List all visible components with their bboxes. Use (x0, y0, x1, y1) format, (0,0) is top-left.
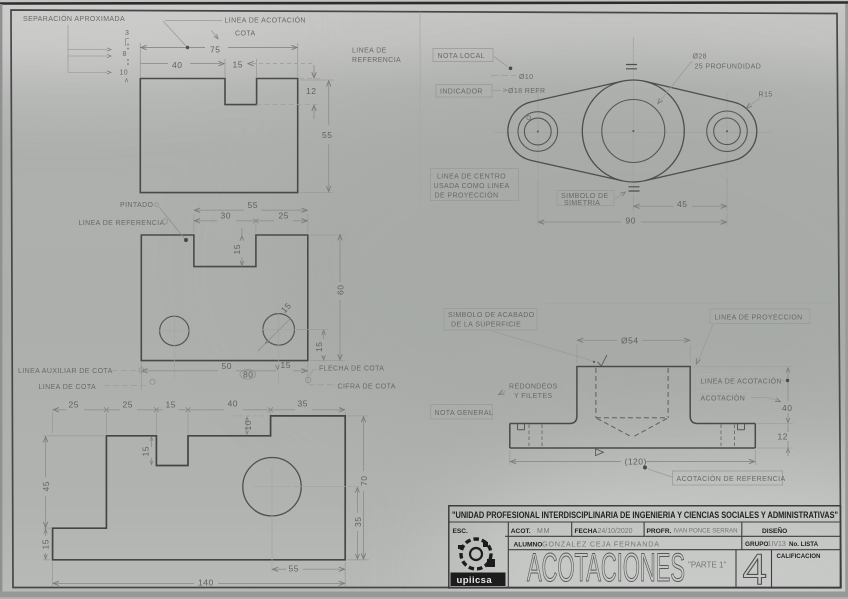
svg-text:35: 35 (353, 517, 363, 527)
svg-text:PROFR.: PROFR. (647, 528, 672, 535)
svg-text:LINEA DE ACOTACIÓN: LINEA DE ACOTACIÓN (701, 377, 782, 386)
svg-text:12: 12 (778, 432, 788, 442)
svg-text:140: 140 (198, 578, 214, 588)
svg-text:ACOTACIÓN: ACOTACIÓN (701, 394, 746, 403)
svg-text:CIFRA DE COTA: CIFRA DE COTA (338, 384, 396, 391)
svg-text:25 PROFUNDIDAD: 25 PROFUNDIDAD (695, 64, 762, 71)
svg-text:90: 90 (626, 216, 636, 226)
svg-text:LINEA DE COTA: LINEA DE COTA (39, 384, 97, 391)
svg-text:ESC.: ESC. (453, 528, 469, 535)
svg-text:3: 3 (125, 30, 129, 37)
svg-text:CALIFICACION: CALIFICACION (777, 554, 821, 560)
svg-text:NOTA GENERAL: NOTA GENERAL (435, 410, 494, 417)
svg-text:COTA: COTA (235, 31, 256, 38)
svg-text:15: 15 (232, 244, 242, 254)
svg-text:40: 40 (228, 398, 238, 408)
svg-text:LINEA DE: LINEA DE (352, 48, 387, 55)
svg-text:15: 15 (281, 360, 291, 370)
svg-text:45: 45 (677, 199, 687, 209)
svg-text:Ø10: Ø10 (519, 74, 533, 81)
svg-text:Ø18 REFR: Ø18 REFR (508, 88, 545, 95)
svg-text:55: 55 (322, 130, 332, 140)
svg-text:FECHA: FECHA (575, 528, 598, 535)
svg-text:40: 40 (172, 60, 182, 70)
svg-text:15: 15 (41, 539, 51, 549)
svg-text:No. LISTA: No. LISTA (789, 541, 819, 548)
svg-text:USADA COMO LINEA: USADA COMO LINEA (434, 183, 510, 190)
svg-text:"PARTE 1": "PARTE 1" (688, 561, 726, 570)
svg-text:ACOTACIONES: ACOTACIONES (527, 546, 685, 590)
svg-text:SIMBOLO DE ACABADO: SIMBOLO DE ACABADO (448, 312, 535, 319)
svg-text:FLECHA DE COTA: FLECHA DE COTA (319, 366, 384, 373)
svg-text:55: 55 (289, 564, 299, 574)
svg-text:25: 25 (279, 210, 289, 220)
svg-text:15: 15 (166, 399, 176, 409)
svg-text:DISEÑO: DISEÑO (762, 526, 787, 535)
svg-text:Ø28: Ø28 (693, 54, 707, 61)
svg-text:Ø54: Ø54 (621, 336, 639, 346)
svg-text:DE PROYECCIÓN: DE PROYECCIÓN (435, 191, 499, 200)
svg-text:1IV13: 1IV13 (768, 541, 786, 548)
svg-text:12: 12 (306, 86, 316, 96)
svg-text:55: 55 (248, 200, 258, 210)
svg-text:LINEA DE PROYECCION: LINEA DE PROYECCION (715, 315, 803, 322)
svg-text:R15: R15 (759, 92, 773, 99)
svg-text:INDICADOR: INDICADOR (440, 89, 483, 96)
svg-text:"UNIDAD PROFESIONAL INTERDISCI: "UNIDAD PROFESIONAL INTERDISCIPLINARIA D… (452, 509, 838, 520)
svg-text:10: 10 (243, 420, 253, 430)
svg-text:REFERENCIA: REFERENCIA (352, 57, 401, 64)
svg-text:4: 4 (743, 546, 767, 595)
svg-text:IVAN PONCE SERRAN: IVAN PONCE SERRAN (674, 529, 738, 535)
svg-text:(120): (120) (625, 457, 647, 467)
svg-text:LINEA DE ACOTACIÓN: LINEA DE ACOTACIÓN (225, 16, 306, 25)
svg-text:60: 60 (336, 285, 346, 295)
svg-text:30: 30 (221, 210, 231, 220)
svg-text:10: 10 (120, 70, 129, 77)
svg-text:8: 8 (123, 51, 127, 58)
svg-text:50: 50 (222, 361, 232, 371)
svg-text:15: 15 (314, 342, 324, 352)
svg-text:15: 15 (141, 446, 151, 456)
svg-text:DE LA SUPERFICIE: DE LA SUPERFICIE (451, 322, 521, 329)
svg-text:SIMETRIA: SIMETRIA (564, 200, 600, 207)
svg-text:LINEA AUXILIAR DE COTA: LINEA AUXILIAR DE COTA (18, 368, 113, 375)
svg-text:Y FILETES: Y FILETES (514, 393, 552, 400)
svg-text:upiicsa: upiicsa (457, 575, 493, 586)
svg-text:15: 15 (233, 60, 243, 70)
svg-text:75: 75 (210, 45, 220, 55)
svg-text:REDONDEOS: REDONDEOS (509, 384, 558, 391)
svg-text:70: 70 (359, 476, 369, 486)
svg-text:25: 25 (123, 399, 133, 409)
svg-text:LINEA DE REFERENCIA: LINEA DE REFERENCIA (79, 220, 165, 227)
svg-text:80: 80 (243, 369, 253, 379)
svg-text:40: 40 (782, 403, 792, 413)
svg-text:LINEA DE CENTRO: LINEA DE CENTRO (437, 174, 506, 181)
svg-text:45: 45 (41, 481, 51, 491)
svg-text:ACOTACIÓN DE REFERENCIA: ACOTACIÓN DE REFERENCIA (677, 474, 786, 483)
svg-text:MM: MM (537, 528, 550, 535)
svg-text:24/10/2020: 24/10/2020 (598, 528, 633, 535)
svg-text:35: 35 (298, 398, 308, 408)
svg-text:PINTADO: PINTADO (120, 202, 154, 209)
svg-text:SEPARACIÓN APROXIMADA: SEPARACIÓN APROXIMADA (23, 14, 125, 23)
svg-text:25: 25 (69, 399, 79, 409)
svg-text:ACOT.: ACOT. (511, 528, 531, 535)
svg-text:NOTA LOCAL: NOTA LOCAL (438, 53, 485, 60)
